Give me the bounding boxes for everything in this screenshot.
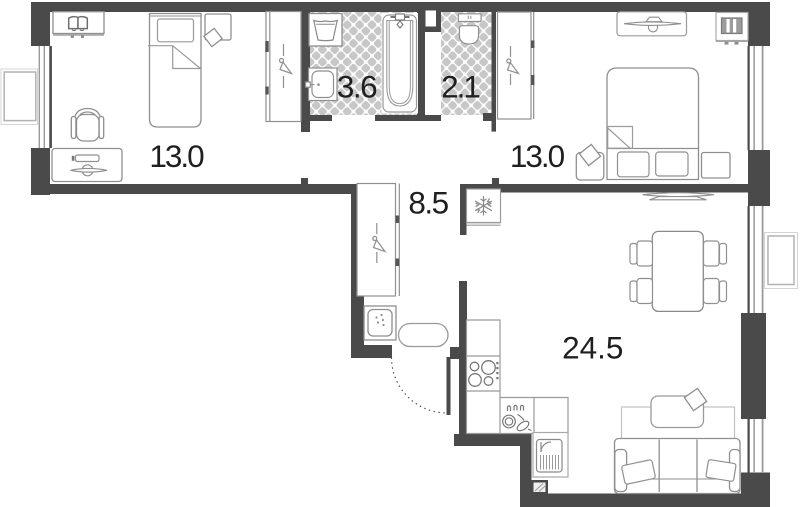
svg-text:8.5: 8.5 [408, 185, 448, 221]
svg-text:3.6: 3.6 [337, 68, 377, 104]
svg-text:13.0: 13.0 [510, 138, 565, 174]
svg-text:13.0: 13.0 [149, 138, 204, 174]
svg-text:2.1: 2.1 [441, 68, 479, 104]
svg-text:24.5: 24.5 [562, 330, 623, 366]
